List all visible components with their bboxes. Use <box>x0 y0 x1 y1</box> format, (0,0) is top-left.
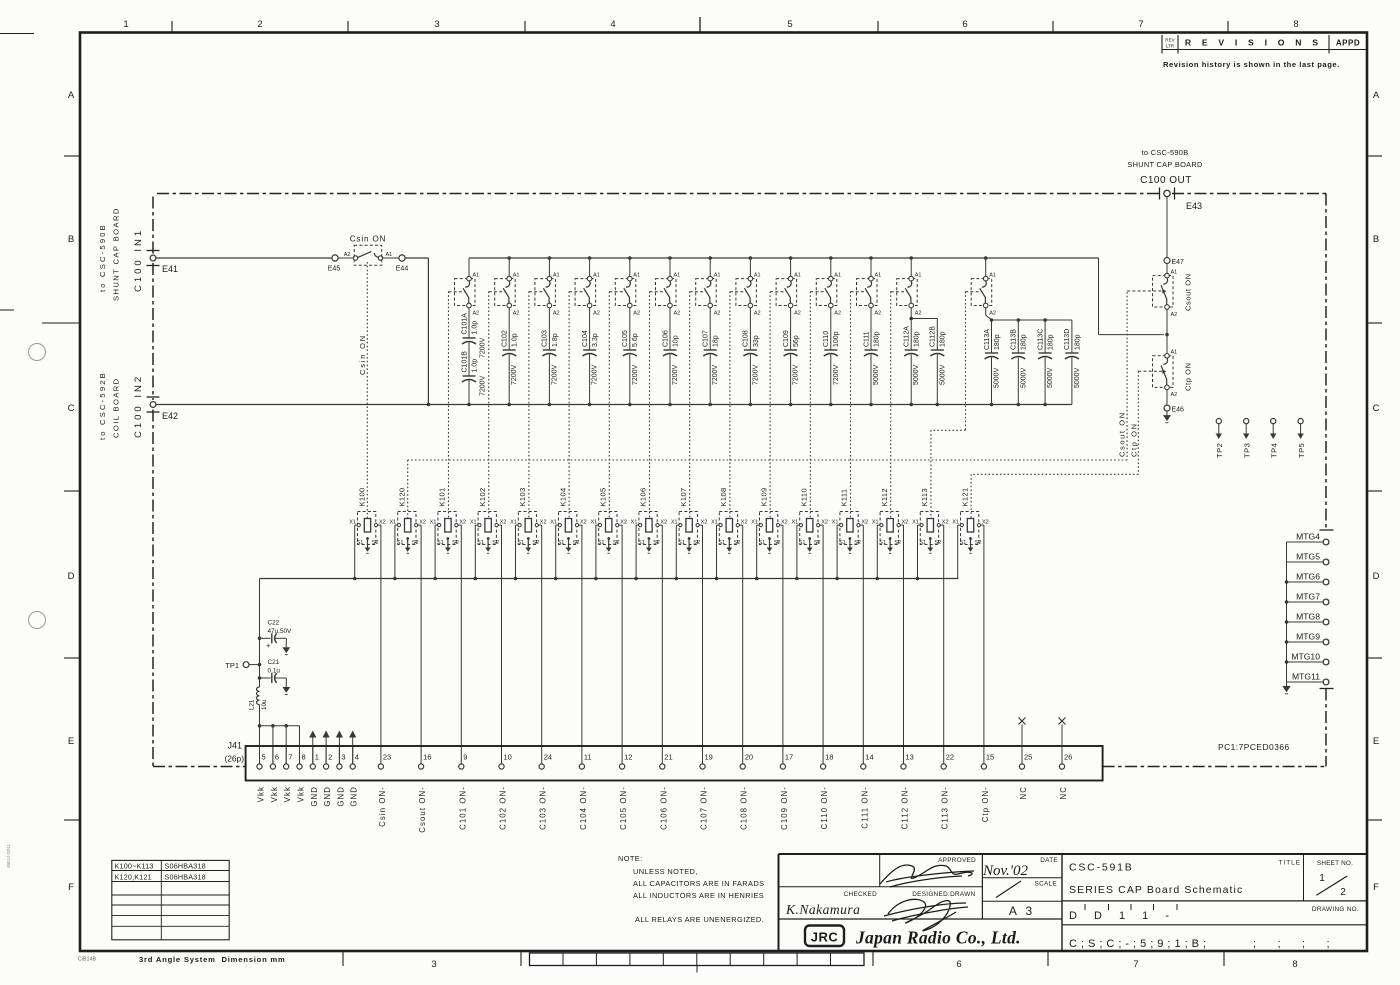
svg-text:7200V: 7200V <box>712 364 719 385</box>
svg-text:1: 1 <box>315 753 319 762</box>
svg-text:Vkk: Vkk <box>297 786 306 802</box>
svg-text:;: ; <box>1327 938 1330 950</box>
svg-text:A2: A2 <box>1171 392 1178 398</box>
svg-text:A1: A1 <box>714 272 721 278</box>
svg-text:C110: C110 <box>823 331 830 347</box>
svg-text:A2: A2 <box>915 310 922 316</box>
svg-text:A1: A1 <box>794 272 801 278</box>
svg-text:7200V: 7200V <box>793 364 800 385</box>
svg-text:R E V I S I O N S: R E V I S I O N S <box>1185 38 1322 48</box>
svg-text:CSC-591B: CSC-591B <box>1069 862 1134 874</box>
svg-text:A2: A2 <box>714 310 721 316</box>
svg-text:7: 7 <box>1133 959 1138 970</box>
svg-text:3: 3 <box>431 959 436 970</box>
svg-text:180p: 180p <box>940 331 947 347</box>
svg-text:100p: 100p <box>833 331 840 347</box>
svg-text:C103 ON-: C103 ON- <box>539 786 548 830</box>
svg-text:A2: A2 <box>754 310 761 316</box>
svg-text:MTG8: MTG8 <box>1296 612 1320 622</box>
svg-text:MTG5: MTG5 <box>1296 552 1320 562</box>
svg-text:Csout ON: Csout ON <box>1184 273 1193 311</box>
svg-text:2: 2 <box>257 19 262 30</box>
svg-text:B: B <box>1373 234 1379 245</box>
svg-text:A1: A1 <box>915 272 922 278</box>
svg-text:UNLESS NOTED,: UNLESS NOTED, <box>633 867 698 876</box>
svg-text:S2: S2 <box>653 540 660 546</box>
svg-text:A1: A1 <box>1171 269 1178 275</box>
svg-text:C104 ON-: C104 ON- <box>579 786 588 830</box>
svg-text:K105: K105 <box>599 487 608 506</box>
svg-text:Revision history is shown in t: Revision history is shown in the last pa… <box>1163 60 1340 69</box>
svg-text:33p: 33p <box>753 335 760 347</box>
svg-text:11: 11 <box>584 753 592 762</box>
svg-text:S1: S1 <box>477 540 484 546</box>
svg-text:E47: E47 <box>1172 259 1185 266</box>
svg-text:S2: S2 <box>935 540 942 546</box>
svg-text:Csin ON: Csin ON <box>358 334 367 375</box>
svg-text:8: 8 <box>1292 959 1297 970</box>
svg-text:7200V: 7200V <box>551 364 558 385</box>
svg-text:A1: A1 <box>593 272 600 278</box>
svg-text:21: 21 <box>664 753 672 762</box>
svg-text:K120: K120 <box>398 487 407 506</box>
svg-text:DESIGNED.DRAWN: DESIGNED.DRAWN <box>912 891 975 898</box>
svg-text:S1: S1 <box>839 540 846 546</box>
svg-text:F: F <box>1373 882 1379 893</box>
svg-text:S1: S1 <box>397 540 404 546</box>
svg-text:A1: A1 <box>754 272 761 278</box>
svg-text:S1: S1 <box>678 540 685 546</box>
svg-text:0.1u: 0.1u <box>268 668 281 675</box>
svg-text:A2: A2 <box>989 310 996 316</box>
svg-text:TITLE: TITLE <box>1279 860 1301 867</box>
svg-text:ALL INDUCTORS ARE IN HENRIES: ALL INDUCTORS ARE IN HENRIES <box>633 891 764 900</box>
svg-text:NC: NC <box>1019 786 1028 799</box>
svg-text:K108: K108 <box>719 487 728 506</box>
svg-text:C108: C108 <box>743 330 750 347</box>
svg-text:S1: S1 <box>357 540 364 546</box>
svg-text:180p: 180p <box>1048 334 1055 350</box>
svg-text:A2: A2 <box>1171 312 1178 318</box>
svg-text:D: D <box>1373 571 1380 582</box>
svg-text:7200V: 7200V <box>479 337 486 358</box>
svg-text:22: 22 <box>946 753 954 762</box>
svg-text:C111 ON-: C111 ON- <box>860 786 869 829</box>
svg-text:Vkk: Vkk <box>257 786 266 802</box>
svg-text:L21: L21 <box>249 699 256 710</box>
svg-text:S1: S1 <box>919 540 926 546</box>
svg-text:25: 25 <box>1024 753 1032 762</box>
svg-text:C: C <box>68 403 75 414</box>
svg-text:CHECKED: CHECKED <box>844 891 877 898</box>
svg-text:TP4: TP4 <box>1269 443 1278 458</box>
svg-text:TP3: TP3 <box>1242 443 1251 458</box>
svg-text:C111: C111 <box>863 331 870 347</box>
svg-text:C106 ON-: C106 ON- <box>659 786 668 830</box>
svg-text:C109: C109 <box>783 330 790 347</box>
svg-text:DRAWING NO.: DRAWING NO. <box>1312 906 1359 913</box>
svg-text:A1: A1 <box>386 252 393 258</box>
svg-text:MTG7: MTG7 <box>1296 592 1320 602</box>
svg-text:K.Nakamura: K.Nakamura <box>785 902 860 917</box>
svg-text:GND: GND <box>310 786 319 807</box>
svg-text:C: C <box>1373 403 1380 414</box>
svg-text:C100 OUT: C100 OUT <box>1140 175 1192 186</box>
svg-text:5000V: 5000V <box>939 364 946 385</box>
svg-text:GND: GND <box>350 786 359 807</box>
svg-text:3.3p: 3.3p <box>592 333 599 347</box>
svg-text:COIL BOARD: COIL BOARD <box>112 377 121 438</box>
svg-text:K101: K101 <box>438 487 447 506</box>
svg-text:REV: REV <box>1165 38 1175 43</box>
svg-text:180p: 180p <box>1021 334 1028 350</box>
svg-text:S2: S2 <box>372 540 379 546</box>
svg-text:S1: S1 <box>437 540 444 546</box>
svg-text:S1: S1 <box>638 540 645 546</box>
svg-text:23: 23 <box>383 753 391 762</box>
svg-text:A2: A2 <box>553 310 560 316</box>
svg-text:J41: J41 <box>227 741 242 751</box>
svg-text:K102: K102 <box>478 487 487 506</box>
svg-text:K109: K109 <box>759 487 768 506</box>
svg-text:APPD: APPD <box>1336 39 1360 48</box>
svg-text:TP1: TP1 <box>225 661 239 670</box>
svg-text:10u: 10u <box>261 699 268 710</box>
svg-text:1.8p: 1.8p <box>552 333 559 347</box>
svg-text:E45: E45 <box>328 266 341 273</box>
svg-text:DATE: DATE <box>1040 857 1058 864</box>
svg-text:5: 5 <box>262 753 266 762</box>
svg-text:S1: S1 <box>799 540 806 546</box>
svg-text:6: 6 <box>962 19 967 30</box>
svg-text:A: A <box>1373 90 1380 101</box>
svg-text:C105 ON-: C105 ON- <box>619 786 628 830</box>
svg-text:S2: S2 <box>412 540 419 546</box>
svg-text:Ctp ON-: Ctp ON- <box>981 786 990 822</box>
svg-text:7200V: 7200V <box>511 364 518 385</box>
svg-text:S2: S2 <box>452 540 459 546</box>
svg-text:10: 10 <box>504 753 512 762</box>
svg-text:A2: A2 <box>344 252 351 258</box>
svg-text:S2: S2 <box>613 540 620 546</box>
svg-text:1: 1 <box>123 19 128 30</box>
svg-text:ALL RELAYS ARE UNENERGIZED.: ALL RELAYS ARE UNENERGIZED. <box>635 915 764 924</box>
svg-text:GND: GND <box>336 786 345 807</box>
svg-text:+: + <box>266 641 271 650</box>
svg-text:A2: A2 <box>834 310 841 316</box>
svg-text:180p: 180p <box>1074 334 1081 350</box>
svg-text:S1: S1 <box>960 540 967 546</box>
svg-text:5.6p: 5.6p <box>632 333 639 347</box>
svg-text:E41: E41 <box>162 264 178 274</box>
svg-text:C100 IN1: C100 IN1 <box>133 228 144 292</box>
svg-text:26: 26 <box>1064 753 1072 762</box>
svg-text:Nov.'02: Nov.'02 <box>982 863 1029 879</box>
svg-text:4B014-DD11: 4B014-DD11 <box>6 843 11 868</box>
svg-text:S1: S1 <box>517 540 524 546</box>
svg-text:;: ; <box>1302 938 1305 950</box>
svg-text:E42: E42 <box>162 411 178 421</box>
svg-text:A1: A1 <box>513 272 520 278</box>
svg-text:JRC: JRC <box>811 930 839 945</box>
svg-text:1.0p: 1.0p <box>471 321 478 335</box>
svg-text:C113A: C113A <box>984 329 991 350</box>
svg-text:SHEET NO.: SHEET NO. <box>1317 860 1353 867</box>
svg-text:C101B: C101B <box>461 351 468 373</box>
svg-text:;: ; <box>1278 938 1281 950</box>
svg-text:13: 13 <box>906 753 914 762</box>
svg-text:A1: A1 <box>875 272 882 278</box>
svg-text:180p: 180p <box>994 334 1001 350</box>
svg-text:K104: K104 <box>558 487 567 506</box>
svg-text:A 3: A 3 <box>1009 904 1035 918</box>
svg-text:180p: 180p <box>873 331 880 347</box>
svg-text:C108 ON-: C108 ON- <box>740 786 749 830</box>
svg-text:7200V: 7200V <box>672 364 679 385</box>
svg-text:A2: A2 <box>875 310 882 316</box>
svg-text:S2: S2 <box>734 540 741 546</box>
svg-text:S2: S2 <box>854 540 861 546</box>
svg-text:C107 ON-: C107 ON- <box>700 786 709 830</box>
svg-text:14: 14 <box>865 753 873 762</box>
svg-text:S1: S1 <box>879 540 886 546</box>
svg-text:A2: A2 <box>473 310 480 316</box>
svg-text:K121: K121 <box>960 487 969 506</box>
svg-text:NOTE:: NOTE: <box>618 854 643 863</box>
svg-text:S1: S1 <box>718 540 725 546</box>
svg-text:C112B: C112B <box>930 326 937 347</box>
svg-text:C105: C105 <box>622 330 629 347</box>
svg-text:1: 1 <box>1319 873 1325 884</box>
svg-text:MTG6: MTG6 <box>1296 572 1320 582</box>
svg-text:LTR: LTR <box>1166 44 1175 49</box>
svg-text:S2: S2 <box>774 540 781 546</box>
svg-text:5000V: 5000V <box>913 364 920 385</box>
svg-text:K106: K106 <box>639 487 648 506</box>
svg-text:C100 IN2: C100 IN2 <box>133 374 144 438</box>
svg-text:18p: 18p <box>713 335 720 347</box>
svg-text:C102: C102 <box>502 330 509 347</box>
svg-text:;: ; <box>1253 938 1256 950</box>
svg-text:S06HBA318: S06HBA318 <box>165 872 206 881</box>
svg-text:C22: C22 <box>268 620 280 627</box>
svg-text:(26p): (26p) <box>224 754 244 764</box>
svg-text:C112A: C112A <box>904 326 911 347</box>
svg-text:S2: S2 <box>573 540 580 546</box>
svg-text:1.0p: 1.0p <box>471 359 478 373</box>
svg-text:B: B <box>68 234 74 245</box>
svg-text:D D 1 1 -: D D 1 1 - <box>1069 910 1176 922</box>
svg-text:7200V: 7200V <box>833 364 840 385</box>
svg-text:MTG10: MTG10 <box>1291 652 1320 662</box>
svg-text:A2: A2 <box>794 310 801 316</box>
svg-text:12: 12 <box>624 753 632 762</box>
svg-text:C113C: C113C <box>1037 329 1044 350</box>
svg-text:8: 8 <box>1293 19 1298 30</box>
svg-text:SCALE: SCALE <box>1035 881 1057 888</box>
svg-text:F: F <box>68 882 74 893</box>
svg-text:C107: C107 <box>703 330 710 347</box>
svg-text:4: 4 <box>610 19 615 30</box>
svg-text:A: A <box>68 90 75 101</box>
svg-text:5000V: 5000V <box>1074 367 1081 388</box>
svg-text:K103: K103 <box>518 487 527 506</box>
svg-text:C110 ON-: C110 ON- <box>820 786 829 829</box>
svg-text:6: 6 <box>956 959 961 970</box>
svg-text:C112 ON-: C112 ON- <box>901 786 910 829</box>
svg-text:E: E <box>68 736 74 747</box>
svg-text:A1: A1 <box>674 272 681 278</box>
svg-text:A2: A2 <box>674 310 681 316</box>
svg-text:8: 8 <box>302 753 306 762</box>
svg-text:E44: E44 <box>396 266 409 273</box>
svg-text:7200V: 7200V <box>479 375 486 396</box>
svg-text:3: 3 <box>434 19 439 30</box>
svg-text:MTG11: MTG11 <box>1292 672 1320 682</box>
svg-text:NC: NC <box>1059 786 1068 799</box>
svg-text:K113: K113 <box>920 488 929 507</box>
svg-text:15: 15 <box>986 753 994 762</box>
svg-text:C113B: C113B <box>1011 329 1018 350</box>
svg-text:Vkk: Vkk <box>283 786 292 802</box>
svg-text:5: 5 <box>787 19 792 30</box>
svg-text:3rd Angle System Dimension mm: 3rd Angle System Dimension mm <box>139 955 286 964</box>
svg-text:C101 ON-: C101 ON- <box>458 786 467 830</box>
svg-text:SHUNT CAP BOARD: SHUNT CAP BOARD <box>1127 160 1202 169</box>
svg-text:18: 18 <box>825 753 833 762</box>
svg-text:C;S;C;-;5;9;1;B;: C;S;C;-;5;9;1;B; <box>1069 938 1210 950</box>
svg-text:to CSC-590B: to CSC-590B <box>98 223 107 292</box>
svg-text:C106: C106 <box>662 330 669 347</box>
svg-text:6: 6 <box>275 753 279 762</box>
svg-text:17: 17 <box>785 753 793 762</box>
svg-text:C113D: C113D <box>1064 329 1071 350</box>
svg-text:47u,50V: 47u,50V <box>268 628 293 635</box>
svg-text:C109 ON-: C109 ON- <box>780 786 789 830</box>
svg-text:5000V: 5000V <box>1047 367 1054 388</box>
svg-text:A2: A2 <box>593 310 600 316</box>
svg-text:C102 ON-: C102 ON- <box>499 786 508 830</box>
svg-text:Csout ON-: Csout ON- <box>418 786 427 833</box>
svg-text:K107: K107 <box>679 487 688 506</box>
svg-text:C21: C21 <box>268 659 280 666</box>
svg-text:SHUNT CAP BOARD: SHUNT CAP BOARD <box>112 207 121 301</box>
svg-text:S2: S2 <box>975 540 982 546</box>
svg-text:Japan Radio Co., Ltd.: Japan Radio Co., Ltd. <box>855 928 1021 948</box>
svg-text:TP5: TP5 <box>1297 443 1306 458</box>
svg-text:7200V: 7200V <box>752 364 759 385</box>
svg-text:A2: A2 <box>633 310 640 316</box>
svg-text:APPROVED: APPROVED <box>938 857 976 864</box>
svg-text:S06HBA318: S06HBA318 <box>165 862 206 871</box>
svg-text:24: 24 <box>544 753 552 762</box>
svg-text:Csout ON: Csout ON <box>1118 411 1127 457</box>
svg-text:20: 20 <box>745 753 753 762</box>
svg-text:A1: A1 <box>633 272 640 278</box>
svg-text:3: 3 <box>341 753 345 762</box>
svg-text:K100~K113: K100~K113 <box>115 862 154 871</box>
svg-text:S2: S2 <box>693 540 700 546</box>
svg-text:180p: 180p <box>914 331 921 347</box>
svg-text:ALL CAPACITORS ARE IN FARADS: ALL CAPACITORS ARE IN FARADS <box>633 879 764 888</box>
svg-text:7200V: 7200V <box>632 364 639 385</box>
svg-text:S1: S1 <box>759 540 766 546</box>
svg-text:to CSC-592B: to CSC-592B <box>98 371 107 440</box>
svg-text:A1: A1 <box>989 272 996 278</box>
svg-text:1.0p: 1.0p <box>512 333 519 347</box>
svg-text:7: 7 <box>288 753 292 762</box>
svg-text:CiB14B: CiB14B <box>78 957 97 963</box>
svg-text:MTG4: MTG4 <box>1296 532 1320 542</box>
svg-text:K112: K112 <box>880 488 889 507</box>
svg-text:5000V: 5000V <box>873 364 880 385</box>
svg-text:S2: S2 <box>533 540 540 546</box>
svg-text:19: 19 <box>705 753 713 762</box>
svg-text:5000V: 5000V <box>994 367 1001 388</box>
svg-text:K120,K121: K120,K121 <box>115 872 152 881</box>
svg-text:C103: C103 <box>542 330 549 347</box>
svg-text:C104: C104 <box>582 330 589 347</box>
svg-text:9: 9 <box>463 753 467 762</box>
svg-text:E43: E43 <box>1186 201 1202 211</box>
svg-text:GND: GND <box>323 786 332 807</box>
svg-text:TP2: TP2 <box>1215 443 1224 458</box>
svg-text:S1: S1 <box>598 540 605 546</box>
svg-text:MTG9: MTG9 <box>1296 632 1320 642</box>
svg-text:2: 2 <box>328 753 332 762</box>
svg-text:Csin ON-: Csin ON- <box>378 786 387 827</box>
svg-text:56p: 56p <box>793 335 800 347</box>
svg-text:16: 16 <box>423 753 431 762</box>
svg-text:2: 2 <box>1340 887 1346 898</box>
svg-text:to CSC-590B: to CSC-590B <box>1142 148 1189 157</box>
svg-text:E: E <box>1373 736 1379 747</box>
svg-text:Csin ON: Csin ON <box>350 235 387 244</box>
svg-text:S2: S2 <box>814 540 821 546</box>
svg-text:C101A: C101A <box>461 313 468 335</box>
svg-text:SERIES CAP Board Schematic: SERIES CAP Board Schematic <box>1069 884 1243 896</box>
svg-text:A1: A1 <box>473 272 480 278</box>
svg-text:C113 ON-: C113 ON- <box>941 786 950 829</box>
svg-text:Ctp ON: Ctp ON <box>1184 362 1193 391</box>
svg-text:D: D <box>68 571 75 582</box>
svg-text:10p: 10p <box>672 335 679 347</box>
svg-text:K100: K100 <box>357 487 366 506</box>
svg-text:S2: S2 <box>894 540 901 546</box>
svg-text:K111: K111 <box>840 488 849 506</box>
svg-text:K110: K110 <box>800 488 809 507</box>
svg-text:7200V: 7200V <box>592 364 599 385</box>
svg-text:A1: A1 <box>1171 350 1178 356</box>
svg-text:4: 4 <box>355 753 359 762</box>
svg-text:5000V: 5000V <box>1020 367 1027 388</box>
svg-text:Ctp ON: Ctp ON <box>1130 422 1139 457</box>
svg-text:A1: A1 <box>553 272 560 278</box>
svg-text:Vkk: Vkk <box>270 786 279 802</box>
svg-text:S2: S2 <box>492 540 499 546</box>
svg-text:A1: A1 <box>834 272 841 278</box>
svg-text:7: 7 <box>1138 19 1143 30</box>
svg-text:A2: A2 <box>513 310 520 316</box>
svg-text:E46: E46 <box>1172 407 1185 414</box>
svg-text:S1: S1 <box>558 540 565 546</box>
svg-text:PC1:7PCED0366: PC1:7PCED0366 <box>1218 742 1290 752</box>
